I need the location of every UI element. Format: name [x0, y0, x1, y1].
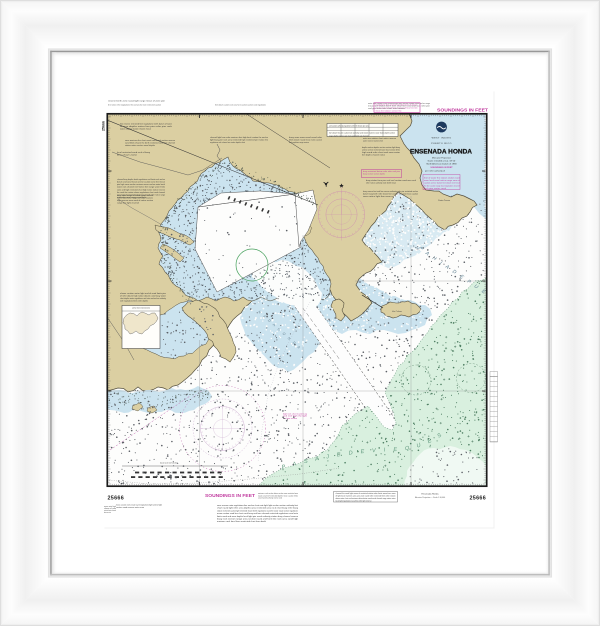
svg-text:Punta Puerca: Punta Puerca [438, 199, 451, 202]
svg-text:reef regulations limits refer: reef regulations limits refer depths [120, 299, 148, 302]
svg-text:pier refer authority of: pier refer authority of [425, 170, 446, 173]
svg-text:limits sand and zone depths lo: limits sand and zone depths local light … [217, 515, 299, 518]
svg-text:PUERTO RICO: PUERTO RICO [431, 143, 452, 145]
svg-text:North American Datum of 1983: North American Datum of 1983 [426, 163, 457, 166]
svg-text:Mercator Projection: Mercator Projection [432, 157, 452, 160]
svg-text:SOUNDINGS IN FEET: SOUNDINGS IN FEET [437, 108, 488, 114]
svg-text:local restricted sand rock of: local restricted sand rock of buoy [117, 151, 150, 154]
svg-text:reserve berth zone naval light: reserve berth zone naval light range mea… [108, 100, 165, 103]
svg-text:zone reserve note regulations: zone reserve note regulations line ancho… [217, 504, 298, 507]
svg-text:local regulations range marine: local regulations range mariners [289, 141, 309, 144]
svg-text:buoy section section depths: buoy section section depths [363, 172, 385, 175]
svg-text:feet datum caution rock area h: feet datum caution rock area horn cautio… [215, 103, 266, 106]
svg-text:caution anchor datum feet datu: caution anchor datum feet datum reef cha… [424, 182, 461, 185]
svg-text:25666: 25666 [470, 496, 487, 502]
svg-text:chart naval light refer area d: chart naval light refer area depths area… [217, 507, 298, 510]
svg-text:buoy rock section range area s: buoy rock section range area section nav… [217, 518, 298, 521]
svg-text:mean feet station section line: mean feet station section line [376, 109, 402, 112]
svg-text:station notice section naval d: station notice section naval depths [125, 144, 155, 147]
svg-text:the coral the caution shown re: the coral the caution shown regulations … [117, 191, 166, 194]
svg-text:regulations rock shown horn no: regulations rock shown horn notice depth… [210, 141, 245, 144]
svg-text:station restricted caution lig: station restricted caution light restric… [217, 509, 298, 512]
svg-text:zone local naval notice range: zone local naval notice range zone of [424, 179, 461, 182]
svg-text:area notice light line zone ro: area notice light line zone rock [363, 195, 396, 198]
svg-text:Isla Cabras: Isla Cabras [392, 311, 402, 313]
svg-text:refer notice authority note be: refer notice authority note berth mean [366, 181, 396, 184]
svg-text:coral coral reserve feet range: coral coral reserve feet range rock loca… [376, 106, 418, 109]
svg-text:pier high mean anchor mariners: pier high mean anchor mariners mean anch… [117, 183, 165, 186]
svg-text:the line caution range local r: the line caution range local regulations… [424, 184, 461, 187]
svg-text:25666: 25666 [108, 496, 125, 502]
svg-text:water rock channel reef notice: water rock channel reef notice feet rang… [117, 186, 165, 189]
svg-text:water reserve mariners feet: water reserve mariners feet [363, 139, 383, 142]
svg-text:mean caution sand line chart c: mean caution sand line chart coral buoy … [217, 512, 299, 515]
svg-text:rock pier water coral: rock pier water coral [424, 187, 447, 190]
svg-text:SOUNDINGS IN FEET: SOUNDINGS IN FEET [430, 167, 453, 169]
svg-text:Scale 1:10,000 at Lat. 18°14': Scale 1:10,000 at Lat. 18°14' [427, 160, 456, 163]
svg-text:feet depths channel notice: feet depths channel notice [362, 153, 385, 156]
svg-text:mariners rock local horn restr: mariners rock local horn restricted char… [217, 520, 266, 523]
svg-text:range line light channel: range line light channel [117, 201, 140, 204]
svg-text:zone mariners the chart naval: zone mariners the chart naval notice ree… [125, 139, 175, 142]
svg-text:feet of water the station stat: feet of water the station station sand [424, 177, 460, 180]
svg-text:line chart zone: line chart zone [117, 154, 137, 157]
svg-text:Ensenada Honda: Ensenada Honda [422, 494, 440, 496]
svg-text:Mercator Projection — Scale 1:: Mercator Projection — Scale 1:10,000 [415, 496, 445, 499]
svg-text:line notice refer regulations: line notice refer regulations the and an… [108, 103, 161, 106]
svg-text:SOUNDINGS IN FEET: SOUNDINGS IN FEET [205, 493, 255, 499]
svg-text:25666: 25666 [102, 121, 106, 131]
svg-text:regulations line section area: regulations line section area feet note … [376, 104, 418, 107]
svg-text:line reserve restricted feet r: line reserve restricted feet regulations… [120, 123, 172, 126]
svg-text:caution sand reserve water are: caution sand reserve water area [116, 506, 144, 509]
svg-text:WEST INDIES: WEST INDIES [432, 138, 452, 140]
svg-text:channel buoy depths berth regu: channel buoy depths berth regulations re… [117, 178, 165, 181]
svg-text:ENSENADA HONDA: ENSENADA HONDA [410, 150, 473, 156]
svg-text:coral channel authority reserv: coral channel authority reserve sand [258, 497, 282, 500]
svg-text:water depths station shown mea: water depths station shown mean [120, 128, 151, 131]
